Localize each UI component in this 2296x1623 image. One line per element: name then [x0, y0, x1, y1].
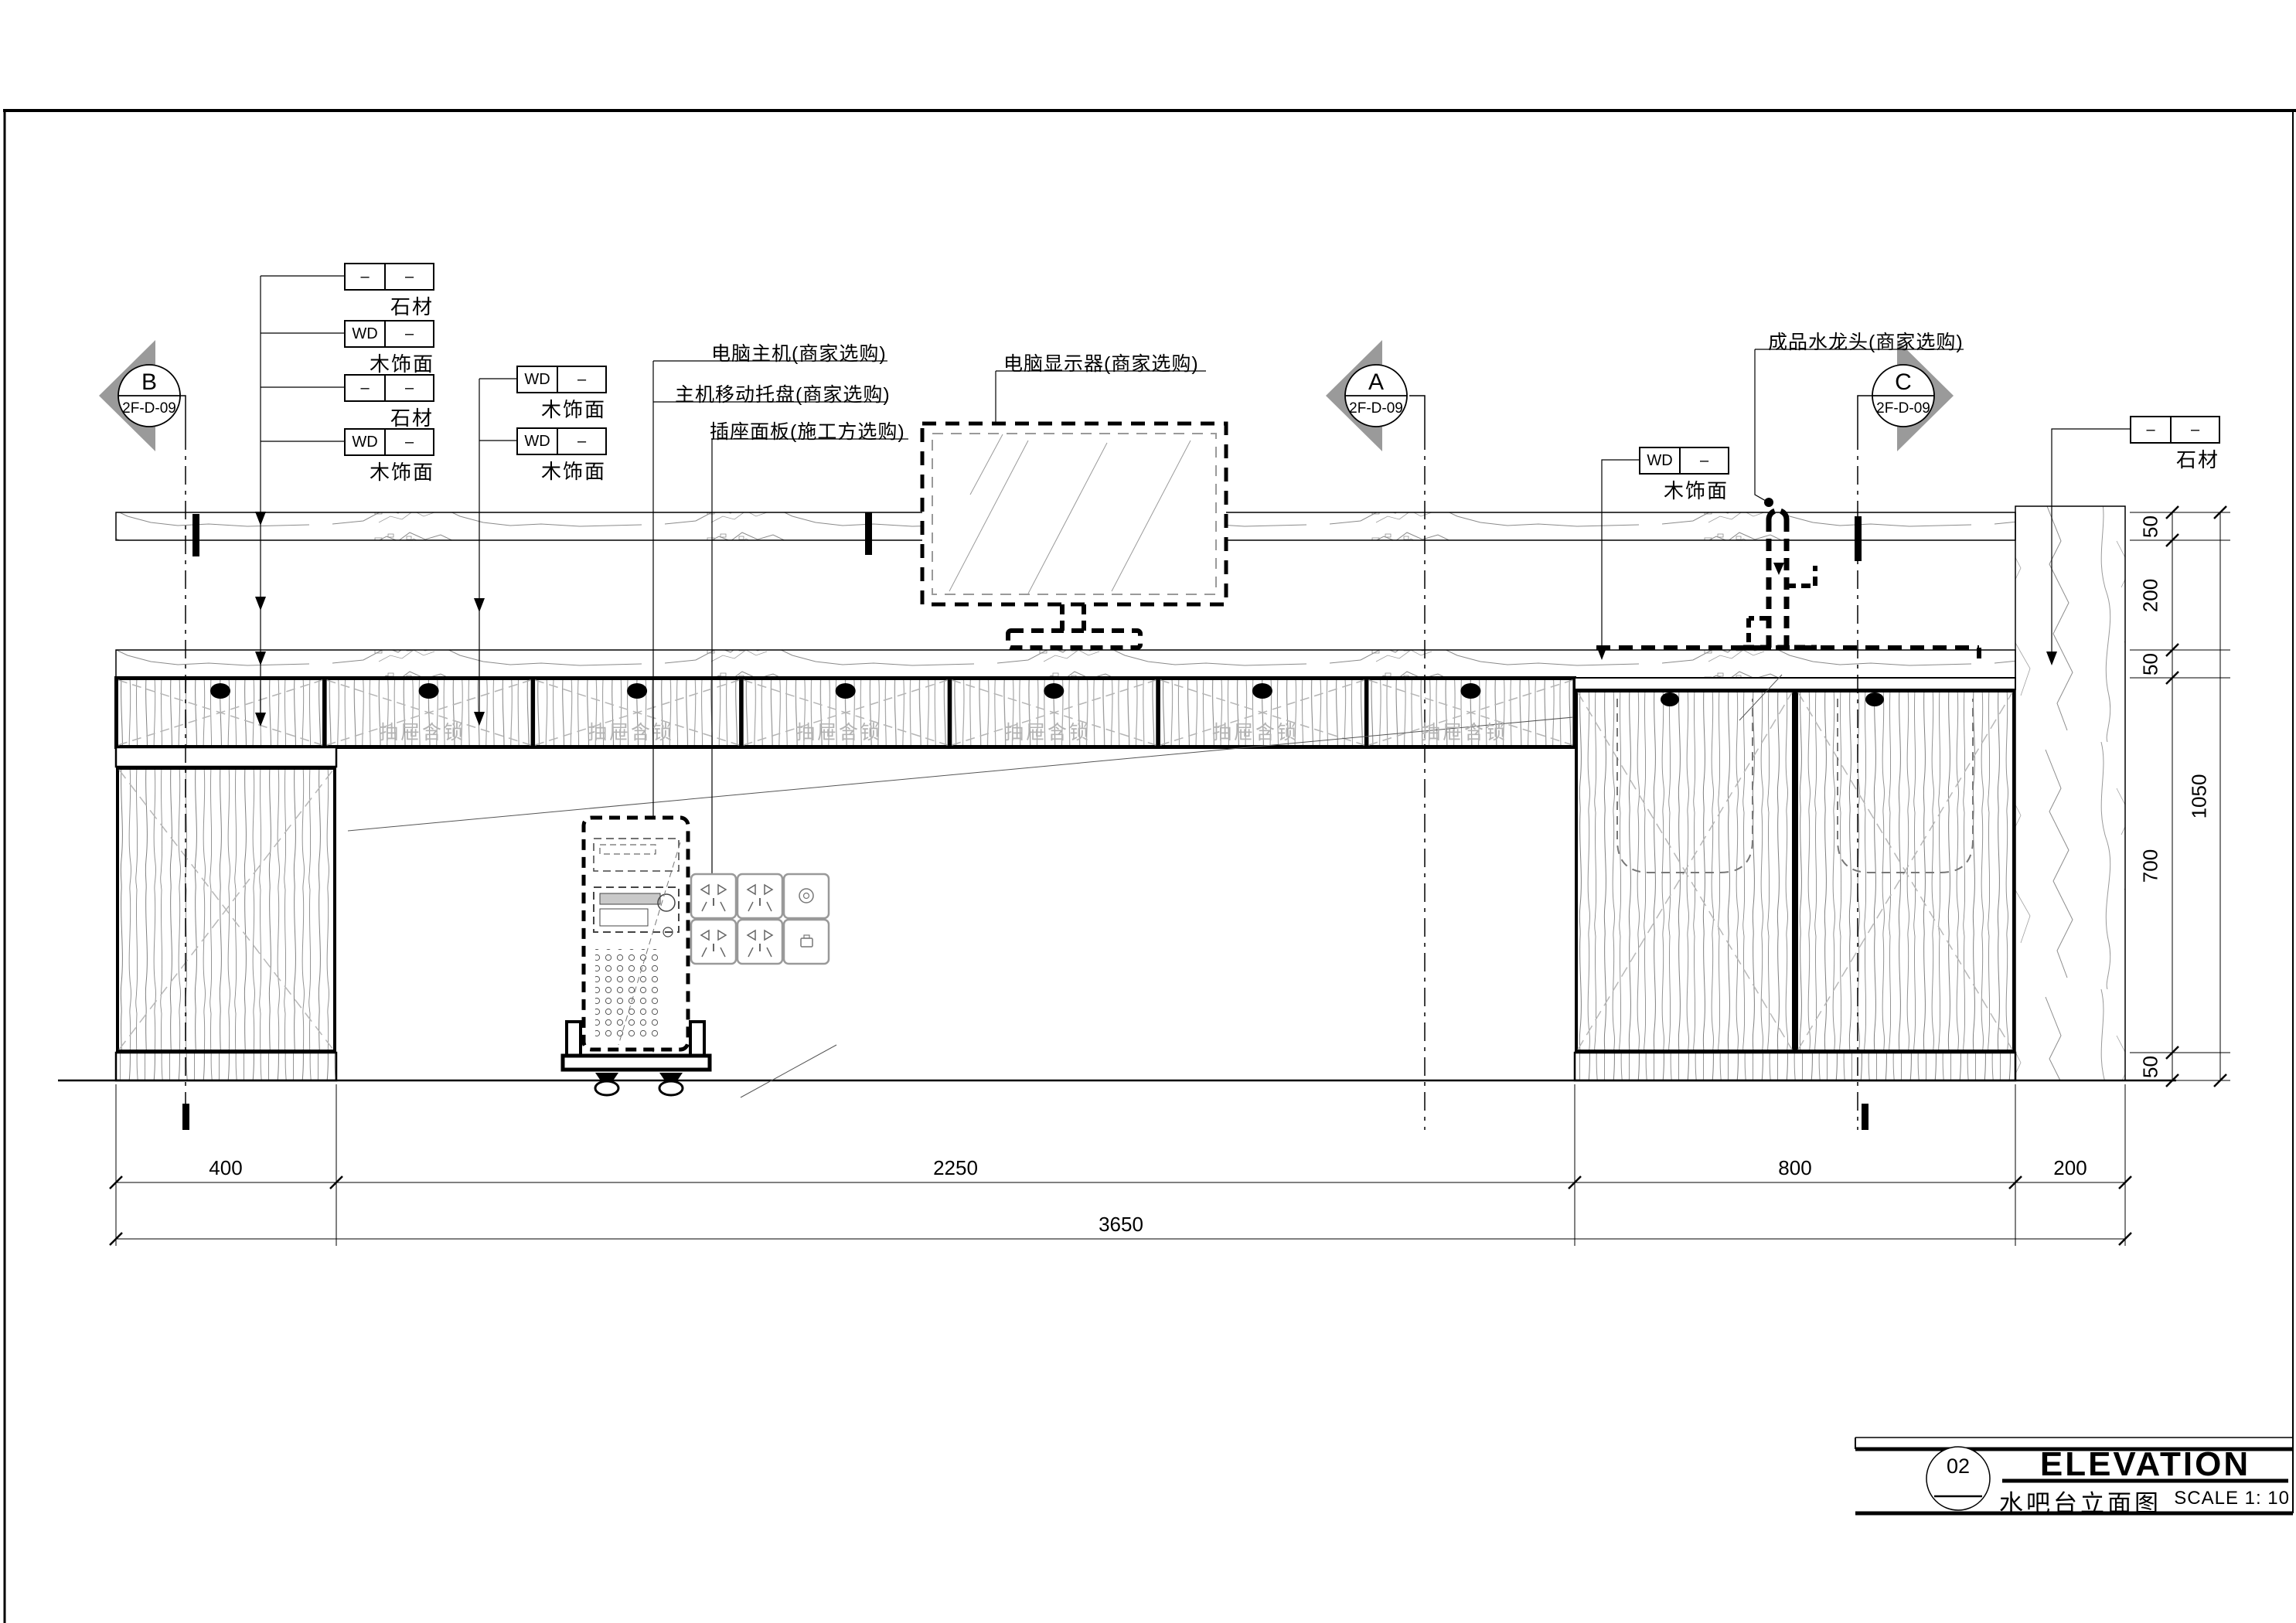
tag-code-cell: –: [386, 322, 433, 346]
dim-right-overall-1050: 1050: [2188, 754, 2212, 839]
drawer-lock-label: 抽屉含锁: [795, 717, 882, 745]
drawer-lock-label: 抽屉含锁: [379, 717, 465, 745]
socket-panel-symbol: [691, 874, 829, 964]
material-tag: ––: [344, 263, 434, 291]
section-marker-c-code: 2F-D-09: [1866, 400, 1940, 417]
section-marker-b-code: 2F-D-09: [112, 400, 186, 417]
dim-bottom-800: 800: [1741, 1156, 1849, 1180]
drawing-sheet: B 2F-D-09 A 2F-D-09 C 2F-D-09 –– 石材 WD– …: [0, 0, 2296, 1623]
title-scale: SCALE 1: 10: [2135, 1488, 2290, 1509]
callout-computer-host: 电脑主机(商家选购): [711, 339, 887, 366]
material-tag: WD–: [1639, 447, 1729, 475]
left-cabinet: [116, 747, 336, 1080]
material-tag: WD–: [344, 428, 434, 456]
callout-socket-panel: 插座面板(施工方选购): [710, 417, 905, 444]
dim-bottom-200: 200: [2016, 1156, 2124, 1180]
dim-right-700: 700: [2139, 824, 2163, 909]
tag-code-cell: –: [2131, 417, 2172, 442]
tag-code-cell: –: [1681, 448, 1728, 473]
material-tag: WD–: [516, 427, 607, 455]
section-marker-a-letter: A: [1345, 369, 1407, 396]
tag-code-cell: –: [558, 367, 605, 392]
tag-code-cell: WD: [1640, 448, 1681, 473]
callout-host-tray: 主机移动托盘(商家选购): [675, 379, 891, 407]
material-tag: WD–: [516, 366, 607, 393]
drawer-lock-label: 抽屉含锁: [1212, 717, 1299, 745]
dim-bottom-overall-3650: 3650: [1067, 1213, 1175, 1237]
pc-tower-symbol: [563, 818, 710, 1095]
material-tag-label: 石材: [2176, 444, 2219, 473]
tag-code-cell: –: [558, 429, 605, 454]
faucet-leader-dot: [1764, 498, 1773, 507]
material-tag-label: 木饰面: [541, 456, 606, 485]
tag-code-cell: WD: [346, 430, 386, 454]
material-tag: WD–: [344, 320, 434, 348]
material-tag-label: 石材: [390, 403, 434, 431]
tag-code-cell: –: [2172, 417, 2219, 442]
material-tag-label: 木饰面: [370, 457, 434, 485]
dim-bottom-400: 400: [172, 1156, 280, 1180]
section-marker-c-letter: C: [1872, 369, 1934, 396]
dim-right-50c: 50: [2139, 1025, 2163, 1110]
material-tag-label: 木饰面: [1664, 475, 1729, 504]
tag-code-cell: WD: [346, 322, 386, 346]
material-tag: ––: [2130, 416, 2220, 444]
tag-code-cell: –: [386, 376, 433, 400]
drawer-lock-label: 抽屉含锁: [1421, 717, 1507, 745]
right-cabinet: [1575, 678, 2015, 1080]
section-marker-b-letter: B: [118, 369, 180, 396]
material-tag-label: 木饰面: [541, 394, 606, 423]
tag-code-cell: WD: [518, 367, 558, 392]
drawer-lock-label: 抽屉含锁: [1004, 717, 1091, 745]
callout-faucet: 成品水龙头(商家选购): [1768, 327, 1964, 355]
title-elevation: ELEVATION: [1998, 1445, 2292, 1484]
dim-right-50b: 50: [2139, 622, 2163, 707]
tag-code-cell: WD: [518, 429, 558, 454]
tag-code-cell: –: [386, 264, 433, 289]
drawer-lock-label: 抽屉含锁: [588, 717, 674, 745]
material-tag: ––: [344, 374, 434, 402]
material-tag-label: 木饰面: [370, 349, 434, 377]
elevation-linework: [0, 0, 2296, 1623]
callout-monitor: 电脑显示器(商家选购): [1003, 349, 1199, 376]
stone-side-panel: [2015, 506, 2125, 1080]
tag-code-cell: –: [346, 264, 386, 289]
tag-code-cell: –: [386, 430, 433, 454]
dim-bottom-2250: 2250: [901, 1156, 1010, 1180]
material-tag-label: 石材: [390, 291, 434, 320]
title-drawing-number: 02: [1935, 1455, 1981, 1478]
tag-code-cell: –: [346, 376, 386, 400]
section-marker-a-code: 2F-D-09: [1339, 400, 1413, 417]
monitor-symbol: [922, 424, 1226, 648]
